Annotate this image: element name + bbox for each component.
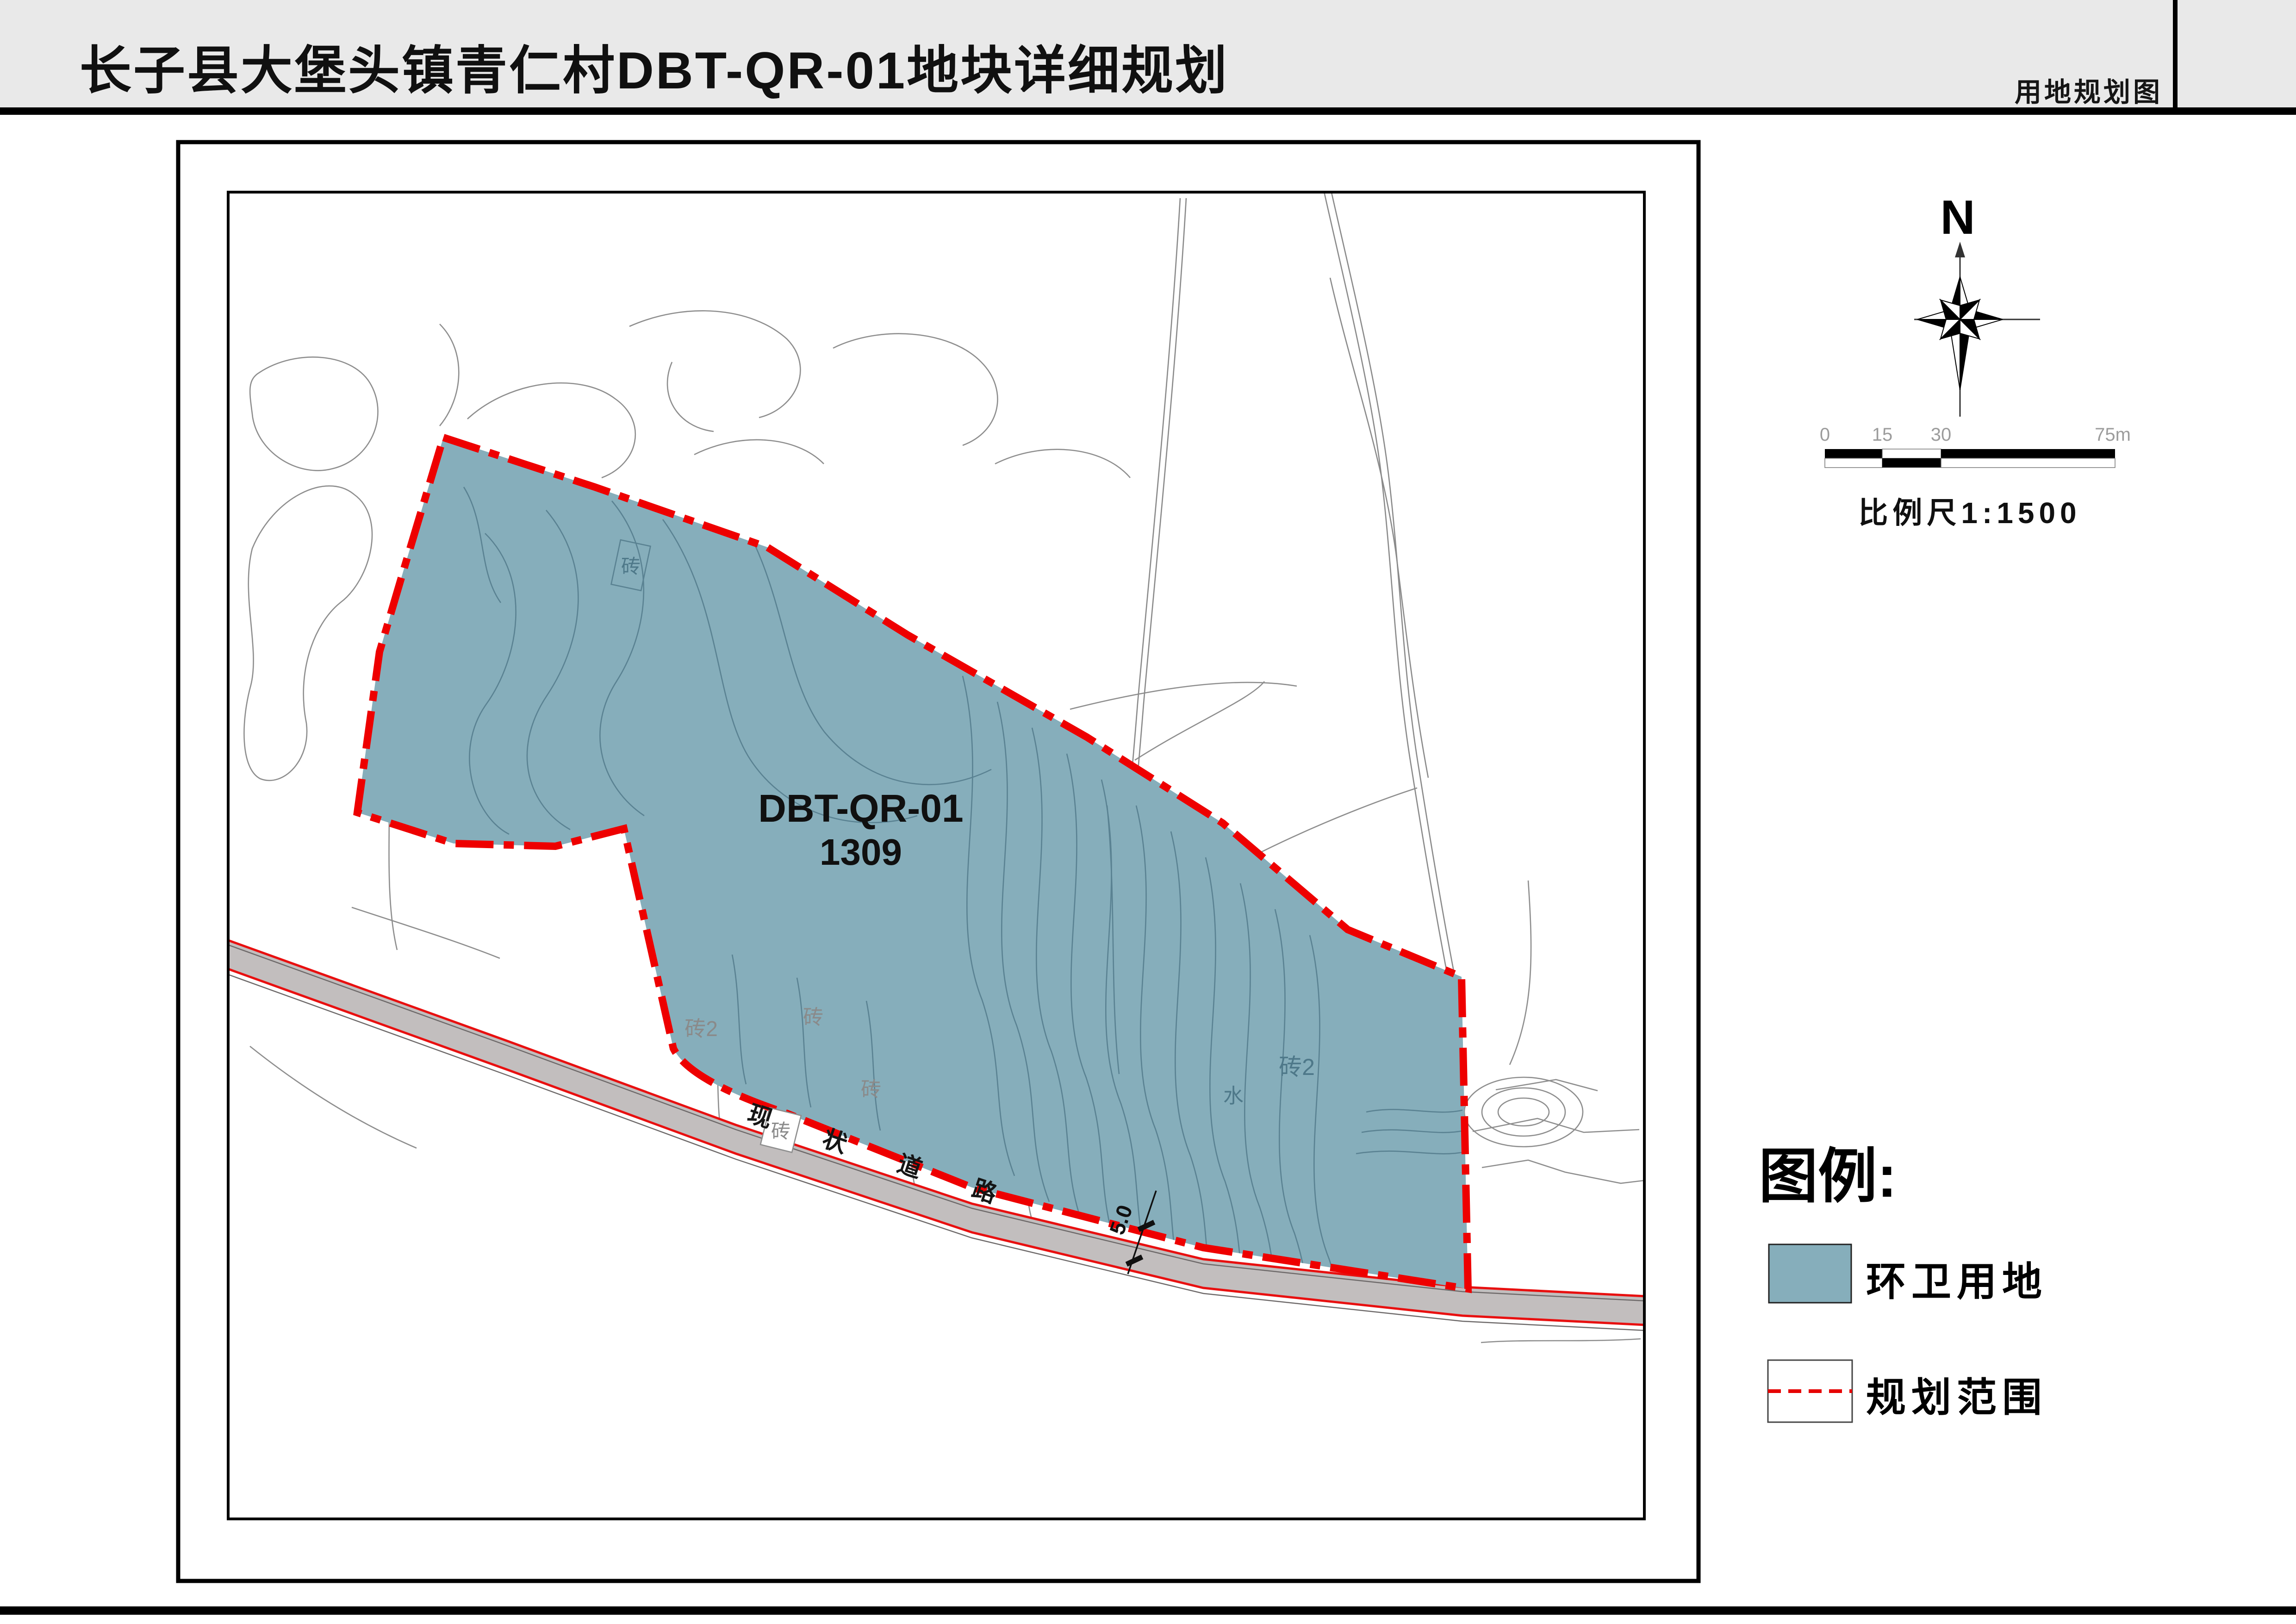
legend-item-boundary: 规划范围 <box>1768 1360 2047 1422</box>
brick-label-upper: 砖 <box>621 556 641 577</box>
parcel-code: DBT-QR-01 <box>758 787 963 830</box>
legend: 图例: 环卫用地 规划范围 <box>1759 1143 2047 1422</box>
legend-title: 图例: <box>1759 1143 1897 1210</box>
scale-tick-75: 75m <box>2095 425 2131 445</box>
legend-item-sanitation: 环卫用地 <box>1769 1244 2047 1304</box>
legend-swatch-sanitation <box>1769 1244 1851 1303</box>
brick2-label-left: 砖2 <box>684 1017 718 1041</box>
north-arrow: N <box>1914 191 2040 417</box>
scale-caption: 比例尺1:1500 <box>1858 496 2081 530</box>
brick-label-mid: 砖 <box>803 1006 823 1029</box>
legend-label-boundary: 规划范围 <box>1866 1375 2047 1420</box>
scale-tick-0: 0 <box>1820 425 1830 445</box>
scale-tick-30: 30 <box>1931 425 1952 445</box>
scale-tick-15: 15 <box>1872 425 1893 445</box>
parcel-number: 1309 <box>820 831 902 873</box>
legend-label-sanitation: 环卫用地 <box>1866 1260 2047 1304</box>
scale-bar: 0 15 30 75m 比例尺1:1500 <box>1820 425 2131 530</box>
water-label: 水 <box>1223 1085 1244 1107</box>
north-label: N <box>1940 191 1975 244</box>
brick2-label-right: 砖2 <box>1279 1054 1315 1080</box>
brick-label-lower: 砖 <box>861 1078 881 1101</box>
plan-drawing: 砖 砖 砖2 砖 砖 砖2 水 DBT-QR-01 1309 现 状 道 路 5… <box>0 0 2296 1624</box>
